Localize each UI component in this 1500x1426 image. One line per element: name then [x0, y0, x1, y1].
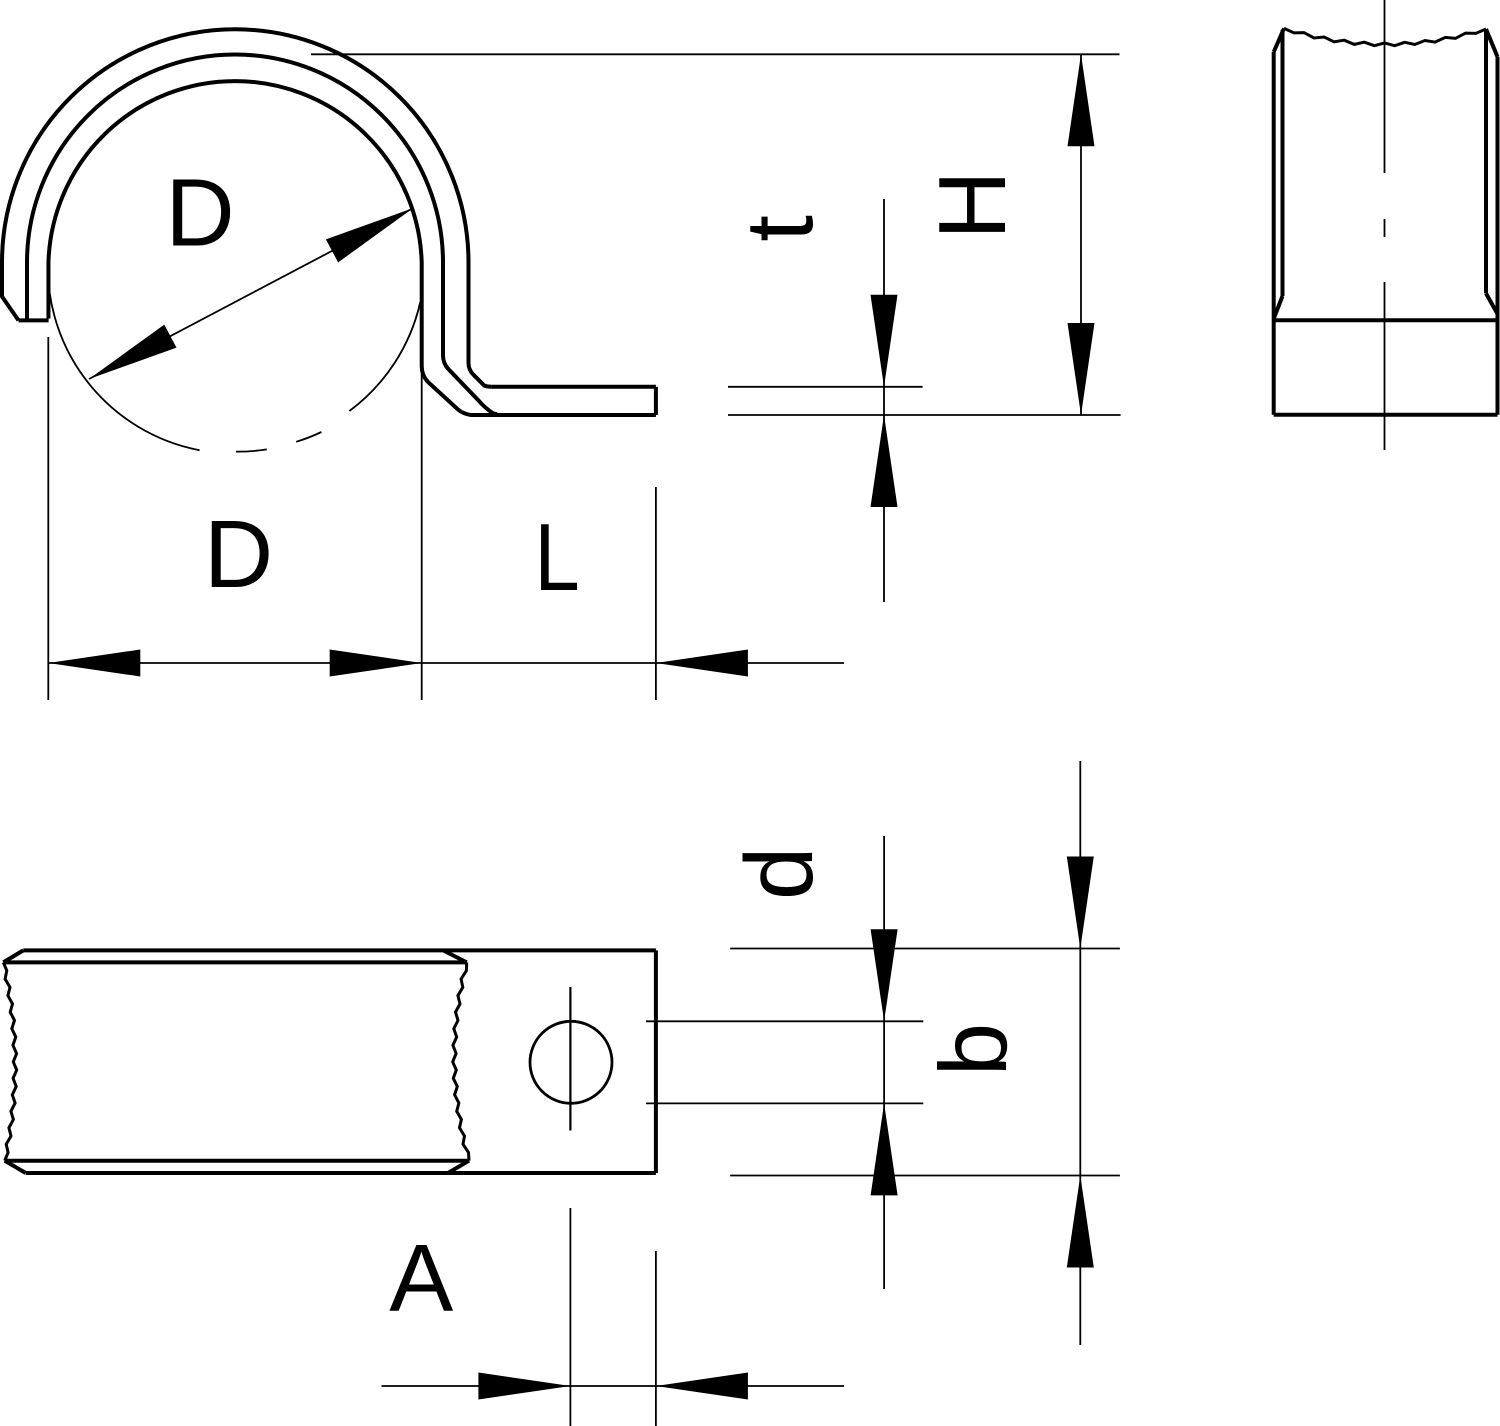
svg-text:d: d: [726, 847, 833, 900]
svg-text:t: t: [726, 215, 833, 242]
svg-text:H: H: [919, 170, 1026, 239]
svg-text:D: D: [165, 159, 234, 266]
svg-text:D: D: [204, 501, 273, 608]
svg-text:b: b: [921, 1023, 1028, 1076]
svg-text:L: L: [534, 503, 579, 611]
svg-text:A: A: [389, 1225, 453, 1332]
